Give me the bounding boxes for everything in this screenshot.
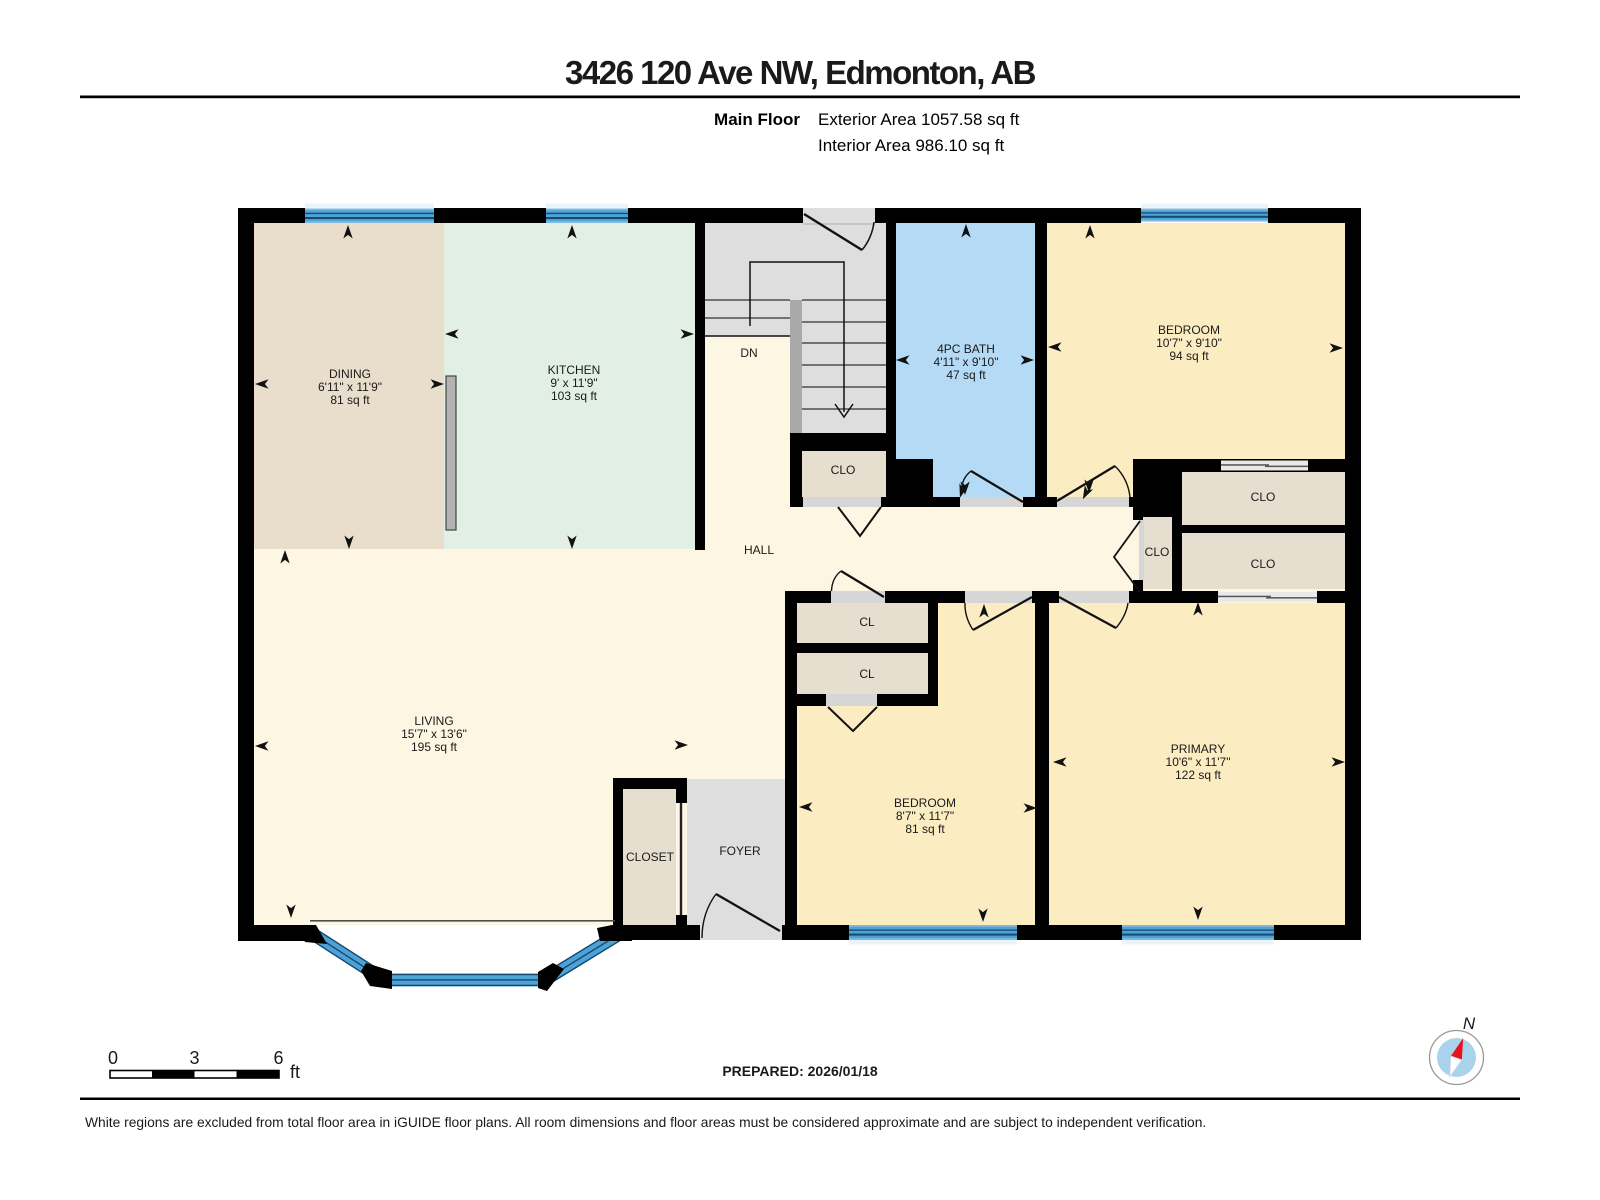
svg-text:0: 0 (108, 1048, 118, 1068)
svg-text:10'6" x 11'7": 10'6" x 11'7" (1166, 755, 1231, 769)
svg-text:15'7" x 13'6": 15'7" x 13'6" (401, 727, 467, 741)
svg-text:CLO: CLO (1251, 557, 1276, 571)
svg-text:BEDROOM: BEDROOM (894, 796, 956, 810)
svg-text:4PC BATH: 4PC BATH (937, 342, 995, 356)
svg-text:6: 6 (273, 1048, 283, 1068)
svg-text:CL: CL (859, 615, 875, 629)
svg-text:N: N (1463, 1014, 1476, 1033)
svg-text:47 sq ft: 47 sq ft (946, 368, 986, 382)
svg-text:8'7" x 11'7": 8'7" x 11'7" (896, 809, 954, 823)
svg-text:BEDROOM: BEDROOM (1158, 323, 1220, 337)
svg-text:FOYER: FOYER (719, 844, 761, 858)
svg-text:ft: ft (290, 1062, 300, 1082)
svg-text:PRIMARY: PRIMARY (1171, 742, 1225, 756)
svg-text:81 sq ft: 81 sq ft (330, 393, 370, 407)
svg-text:White regions are excluded fro: White regions are excluded from total fl… (85, 1115, 1206, 1130)
svg-text:CL: CL (859, 667, 875, 681)
svg-text:CLO: CLO (1251, 490, 1276, 504)
svg-text:DINING: DINING (329, 367, 371, 381)
svg-text:3426 120 Ave NW, Edmonton, AB: 3426 120 Ave NW, Edmonton, AB (565, 54, 1036, 91)
svg-text:3: 3 (189, 1048, 199, 1068)
svg-text:CLO: CLO (831, 463, 856, 477)
svg-text:PREPARED: 2026/01/18: PREPARED: 2026/01/18 (722, 1063, 878, 1079)
svg-text:6'11" x 11'9": 6'11" x 11'9" (318, 380, 382, 394)
svg-text:10'7" x 9'10": 10'7" x 9'10" (1156, 336, 1222, 350)
svg-text:CLOSET: CLOSET (626, 850, 675, 864)
svg-text:103 sq ft: 103 sq ft (551, 389, 598, 403)
svg-text:122 sq ft: 122 sq ft (1175, 768, 1222, 782)
svg-text:Exterior Area 1057.58 sq ft: Exterior Area 1057.58 sq ft (818, 110, 1020, 129)
svg-text:KITCHEN: KITCHEN (548, 363, 601, 377)
svg-text:CLO: CLO (1145, 545, 1170, 559)
svg-text:4'11" x 9'10": 4'11" x 9'10" (934, 355, 999, 369)
svg-text:9' x 11'9": 9' x 11'9" (550, 376, 597, 390)
svg-text:Interior Area 986.10 sq ft: Interior Area 986.10 sq ft (818, 136, 1004, 155)
svg-text:195 sq ft: 195 sq ft (411, 740, 458, 754)
svg-text:HALL: HALL (744, 543, 774, 557)
svg-text:81 sq ft: 81 sq ft (905, 822, 945, 836)
svg-text:Main Floor: Main Floor (714, 110, 800, 129)
svg-text:LIVING: LIVING (414, 714, 453, 728)
svg-text:DN: DN (740, 346, 757, 360)
svg-text:94 sq ft: 94 sq ft (1169, 349, 1209, 363)
